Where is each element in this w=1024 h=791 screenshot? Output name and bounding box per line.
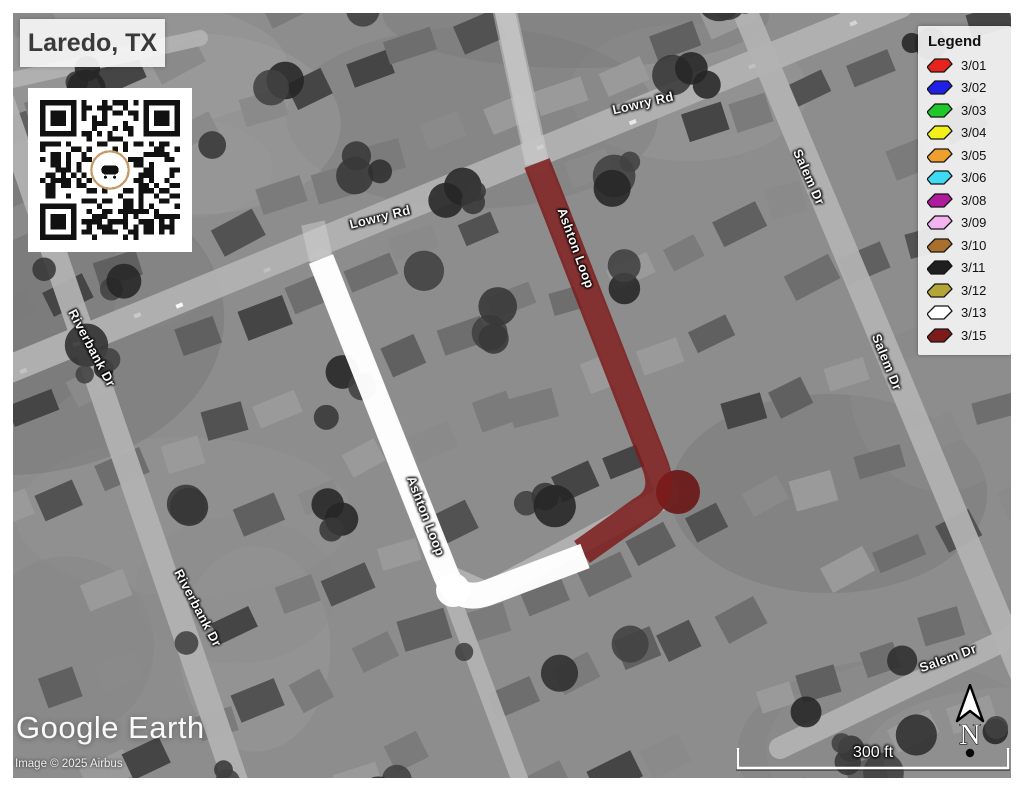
legend-row: 3/05 [927, 144, 1002, 167]
legend-swatch [927, 215, 953, 230]
legend-swatch [927, 170, 953, 185]
legend-row: 3/10 [927, 234, 1002, 257]
legend-swatch [927, 305, 953, 320]
legend-date: 3/02 [961, 80, 986, 95]
legend-row: 3/06 [927, 167, 1002, 190]
legend-date: 3/09 [961, 215, 986, 230]
legend-row: 3/15 [927, 324, 1002, 347]
legend-title: Legend [928, 33, 1002, 50]
legend-swatch [927, 80, 953, 95]
legend-date: 3/05 [961, 148, 986, 163]
north-indicator: N [953, 684, 987, 758]
legend-swatch [927, 58, 953, 73]
legend-date: 3/15 [961, 328, 986, 343]
legend-date: 3/06 [961, 170, 986, 185]
imagery-attribution: Image © 2025 Airbus [15, 758, 123, 770]
legend-row: 3/02 [927, 77, 1002, 100]
north-arrow-icon: N [953, 684, 987, 758]
legend-swatch [927, 148, 953, 163]
legend-row: 3/01 [927, 54, 1002, 77]
legend-swatch [927, 328, 953, 343]
legend-swatch [927, 260, 953, 275]
legend-swatch [927, 238, 953, 253]
legend-rows: 3/013/023/033/043/053/063/083/093/103/11… [927, 54, 1002, 347]
legend-date: 3/03 [961, 103, 986, 118]
google-earth-logo: Google Earth [16, 710, 205, 746]
legend-panel: Legend 3/013/023/033/043/053/063/083/093… [918, 26, 1011, 355]
legend-date: 3/01 [961, 58, 986, 73]
map-title: Laredo, TX [20, 19, 165, 67]
legend-row: 3/03 [927, 99, 1002, 122]
legend-date: 3/04 [961, 125, 986, 140]
legend-swatch [927, 193, 953, 208]
qr-code [28, 88, 192, 252]
legend-row: 3/08 [927, 189, 1002, 212]
legend-row: 3/11 [927, 257, 1002, 280]
legend-date: 3/13 [961, 305, 986, 320]
legend-row: 3/13 [927, 302, 1002, 325]
map-canvas: Lowry Rd Lowry Rd Ashton Loop Ashton Loo… [0, 0, 1024, 791]
legend-date: 3/11 [961, 260, 985, 275]
legend-swatch [927, 103, 953, 118]
legend-date: 3/10 [961, 238, 986, 253]
legend-date: 3/12 [961, 283, 986, 298]
legend-row: 3/12 [927, 279, 1002, 302]
legend-date: 3/08 [961, 193, 986, 208]
legend-row: 3/09 [927, 212, 1002, 235]
legend-swatch [927, 283, 953, 298]
legend-row: 3/04 [927, 122, 1002, 145]
legend-swatch [927, 125, 953, 140]
qr-code-pattern [35, 95, 185, 245]
north-label: N [959, 718, 981, 751]
